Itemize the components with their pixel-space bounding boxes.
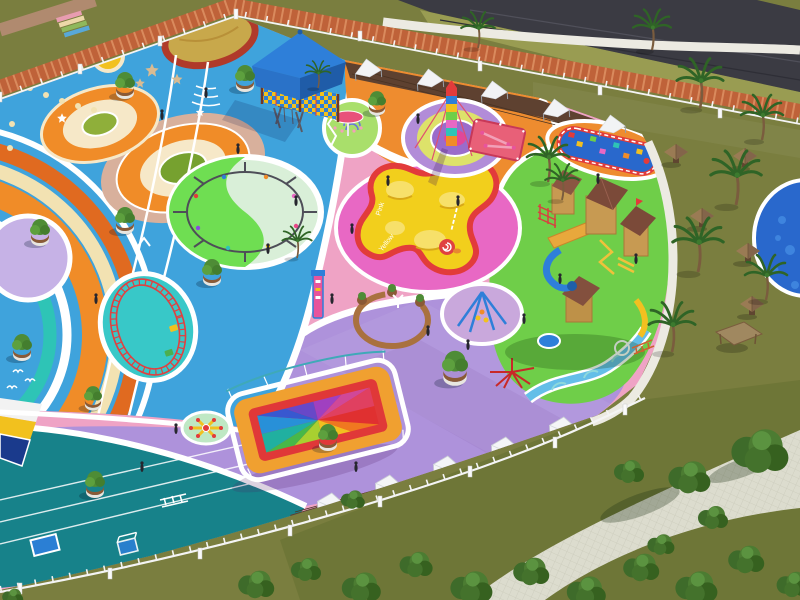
splash-pool-small xyxy=(538,334,560,348)
hill-trampoline: Pink Yellow xyxy=(358,159,497,272)
playground-render: JUST DO IT xyxy=(0,0,800,600)
rope-pyramid-swing xyxy=(442,284,522,344)
sign-totem xyxy=(311,270,325,318)
spoke-merry-go-round xyxy=(182,412,230,444)
